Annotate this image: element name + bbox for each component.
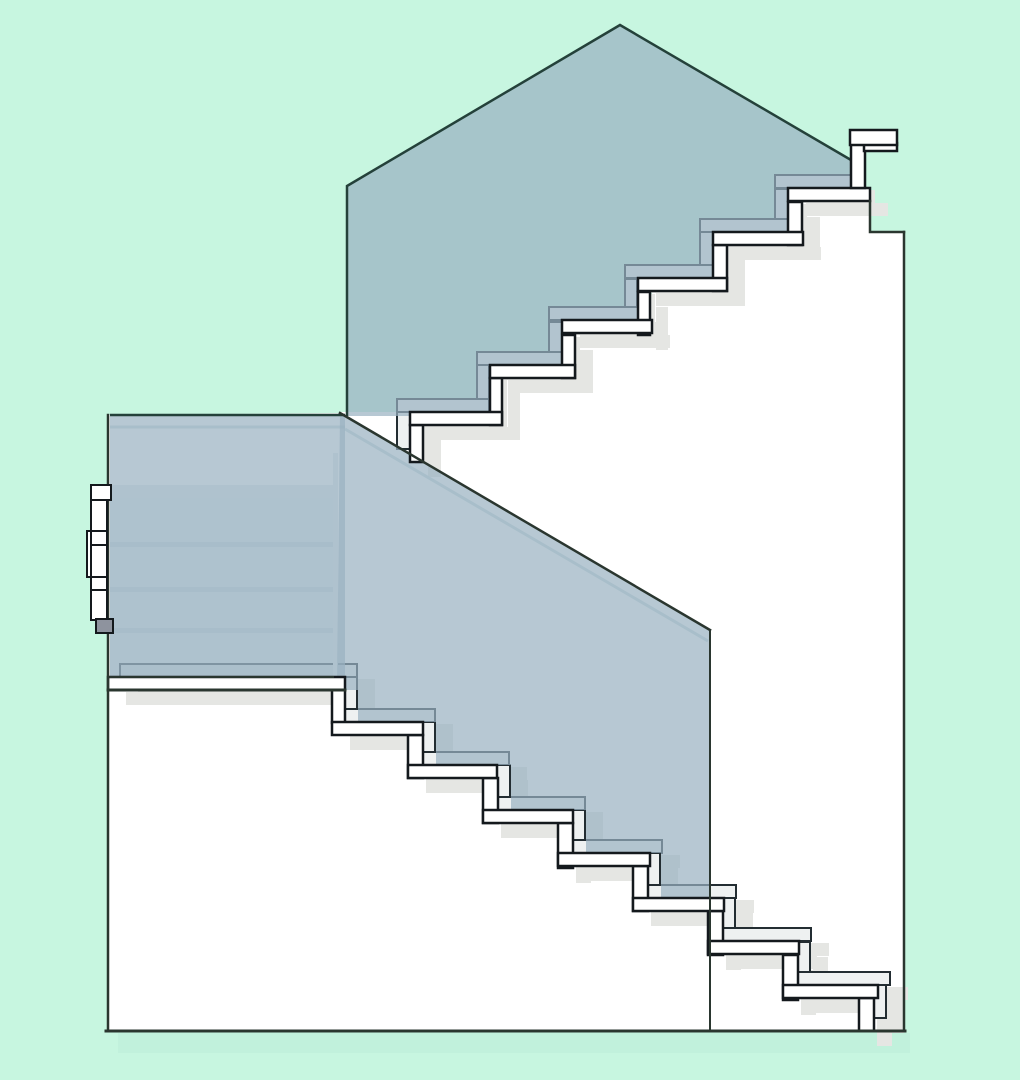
ground-shadow xyxy=(118,1033,910,1053)
jamb-head xyxy=(91,485,111,500)
staircase-section-drawing xyxy=(0,0,1020,1080)
handrail-top-bar xyxy=(850,130,897,145)
drawing-canvas xyxy=(0,0,1020,1080)
jamb-sill-block xyxy=(96,619,113,633)
landing-glass-panel xyxy=(110,415,345,677)
jamb-body xyxy=(91,500,107,620)
